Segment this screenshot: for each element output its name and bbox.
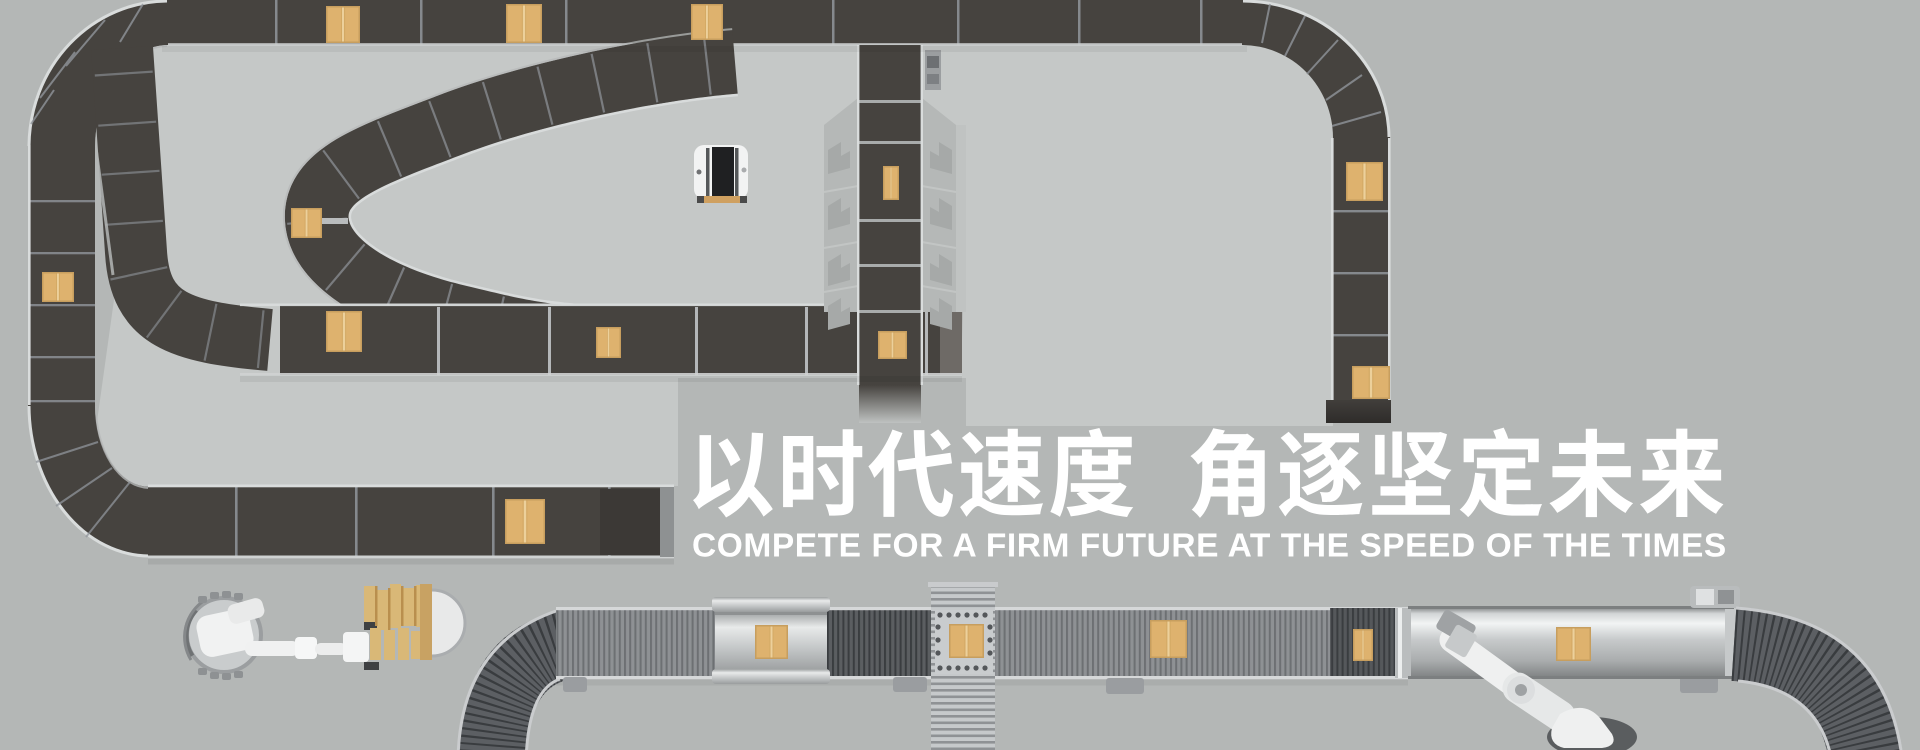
svg-text:COMPETE FOR A FIRM FUTURE AT T: COMPETE FOR A FIRM FUTURE AT THE SPEED O… [692,528,1727,565]
